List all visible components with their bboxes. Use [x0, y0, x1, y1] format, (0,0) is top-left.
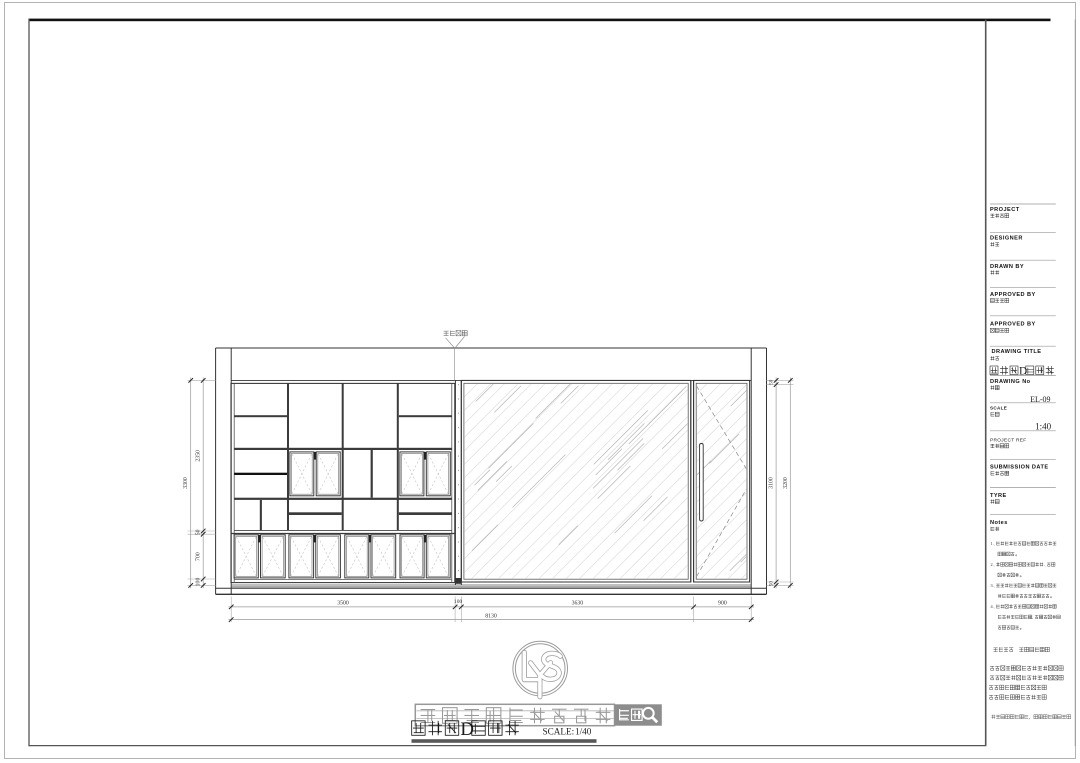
- svg-text:DRAWN BY: DRAWN BY: [990, 264, 1024, 270]
- svg-text:TYRE: TYRE: [990, 493, 1007, 499]
- svg-text:PROJECT: PROJECT: [990, 207, 1020, 213]
- svg-text:,: ,: [1029, 715, 1030, 721]
- svg-text:DESIGNER: DESIGNER: [990, 236, 1023, 242]
- svg-text:EL-09: EL-09: [1030, 395, 1050, 404]
- svg-text:700: 700: [196, 552, 202, 561]
- svg-text:DRAWING No: DRAWING No: [990, 379, 1031, 385]
- svg-text:100: 100: [454, 599, 462, 605]
- svg-text:50: 50: [196, 529, 202, 535]
- svg-text:100: 100: [196, 578, 202, 587]
- svg-text:SUBMISSION DATE: SUBMISSION DATE: [990, 465, 1049, 471]
- svg-text:,: ,: [1032, 614, 1033, 620]
- svg-text:2: 2: [991, 562, 993, 567]
- svg-text:DRAWING TITLE: DRAWING TITLE: [992, 349, 1042, 355]
- svg-text:1/40: 1/40: [575, 726, 592, 736]
- svg-text:3630: 3630: [572, 601, 584, 607]
- svg-text:900: 900: [718, 601, 727, 607]
- svg-text:50: 50: [769, 581, 775, 587]
- svg-text:SCALE:: SCALE:: [543, 726, 575, 736]
- svg-text:3300: 3300: [183, 477, 189, 489]
- svg-text:3200: 3200: [783, 477, 789, 489]
- svg-text:3: 3: [991, 583, 993, 588]
- svg-text:PROJECT REF: PROJECT REF: [990, 437, 1027, 443]
- svg-text:1: 1: [991, 541, 993, 546]
- svg-text:APPROVED BY: APPROVED BY: [990, 322, 1036, 328]
- svg-text:3500: 3500: [337, 601, 349, 607]
- svg-text:50: 50: [769, 379, 775, 385]
- svg-text:Notes: Notes: [990, 520, 1008, 526]
- svg-text:8130: 8130: [485, 613, 497, 619]
- svg-text:APPROVED BY: APPROVED BY: [990, 292, 1036, 298]
- svg-text:3100: 3100: [769, 477, 775, 489]
- svg-text:2350: 2350: [196, 450, 202, 462]
- svg-text:1:40: 1:40: [1035, 421, 1052, 431]
- svg-text:4: 4: [991, 604, 994, 609]
- svg-text:SCALE: SCALE: [990, 406, 1007, 411]
